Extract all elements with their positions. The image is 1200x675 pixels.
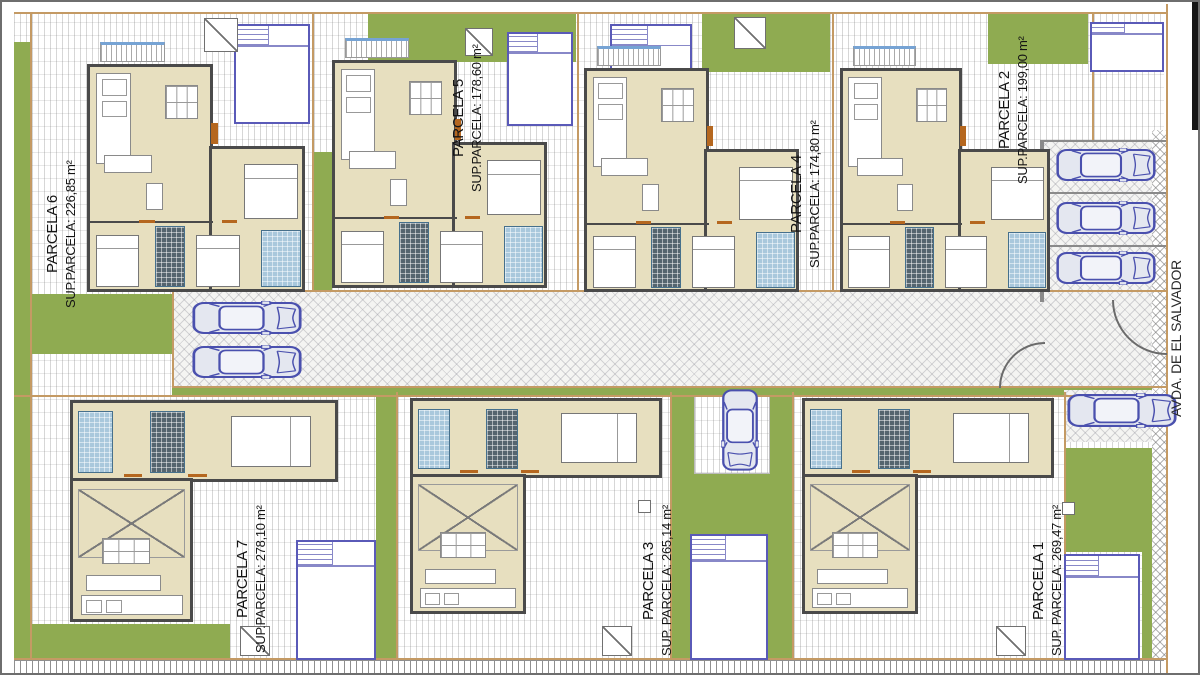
door-jamb: [384, 216, 399, 219]
roof-vent-icon: [996, 626, 1026, 656]
boundary-line: [396, 392, 398, 658]
bed: [561, 413, 637, 463]
furniture: [897, 184, 914, 211]
door-jamb: [465, 216, 480, 219]
parcel-name: PARCELA 5: [450, 32, 469, 204]
kitchen: [96, 73, 131, 164]
bed: [739, 167, 793, 221]
sofa: [349, 151, 396, 169]
parcel-6-label: PARCELA 6 SUP.PARCELA: 226,85 m²: [44, 142, 90, 327]
sofa: [817, 569, 888, 584]
car-icon: [1056, 148, 1156, 182]
dining-table: [409, 81, 441, 115]
house-floor-plan: [802, 398, 1054, 614]
stairs-icon: [853, 46, 916, 66]
dining-table: [165, 85, 198, 119]
sofa: [104, 155, 152, 173]
bathroom: [418, 409, 451, 469]
door-jamb: [717, 221, 732, 224]
boundary-line: [792, 392, 794, 658]
house-floor-plan: [70, 400, 338, 622]
car-icon: [1056, 251, 1156, 285]
parcel-area: SUP.PARCELA: 199,00 m²: [1015, 26, 1032, 194]
garden-patch: [30, 624, 230, 660]
door-jamb: [960, 126, 966, 146]
parcel-name: PARCELA 2: [996, 26, 1015, 194]
bathroom: [810, 409, 843, 469]
bed: [440, 231, 483, 283]
parcel-area: SUP.PARCELA: 226,85 m²: [63, 142, 80, 327]
dining-table: [102, 538, 150, 565]
bathroom: [1008, 232, 1046, 288]
kitchen: [420, 588, 516, 607]
car-icon: [1056, 201, 1156, 235]
parcel-4-label: PARCELA 4 SUP.PARCELA: 174,80 m²: [788, 94, 834, 294]
bed: [341, 231, 384, 283]
dining-table: [832, 532, 877, 558]
kitchen: [81, 595, 183, 615]
dining-table: [661, 88, 693, 122]
parcel-area: SUP.PARCELA: 278,10 m²: [253, 496, 270, 662]
street-name: AVDA. DE EL SALVADOR: [1168, 214, 1186, 464]
boundary-line: [577, 14, 579, 292]
bed: [593, 236, 636, 288]
door-jamb: [913, 470, 931, 473]
parcel-area: SUP.PARCELA: 174,80 m²: [807, 94, 824, 294]
door-jamb: [188, 474, 207, 477]
parcel-3-label: PARCELA 3 SUP. PARCELA: 265,14 m²: [640, 500, 686, 662]
bathroom: [905, 227, 934, 287]
parcel-name: PARCELA 1: [1030, 500, 1049, 662]
parcel-name: PARCELA 3: [640, 500, 659, 662]
door-jamb: [139, 220, 154, 223]
parcel-area: SUP. PARCELA: 265,14 m²: [659, 500, 676, 662]
garden-patch: [14, 42, 30, 660]
bathroom: [78, 411, 113, 473]
car-icon: [192, 301, 302, 335]
boundary-line: [312, 14, 314, 292]
door-jamb: [124, 474, 143, 477]
parcel-name: PARCELA 4: [788, 94, 807, 294]
bathroom: [155, 226, 186, 288]
bed: [196, 235, 240, 287]
dining-table: [916, 88, 948, 122]
door-jamb: [890, 221, 905, 224]
sofa: [857, 158, 903, 176]
bed: [692, 236, 735, 288]
parcel-5-label: PARCELA 5 SUP.PARCELA: 178,60 m²: [450, 32, 496, 204]
roof-vent-icon: [204, 18, 238, 52]
kitchen: [812, 588, 908, 607]
boundary-line: [14, 658, 1166, 660]
door-jamb: [460, 470, 478, 473]
boundary-line: [172, 292, 174, 387]
stairs-icon: [597, 46, 662, 66]
parcel-1-label: PARCELA 1 SUP. PARCELA: 269,47 m²: [1030, 500, 1076, 662]
kitchen: [593, 77, 627, 167]
bathroom: [150, 411, 185, 473]
parking-divider: [1044, 140, 1166, 142]
swimming-pool: [690, 534, 768, 660]
sofa: [86, 575, 161, 591]
door-jamb: [211, 123, 218, 144]
door-jamb: [521, 470, 539, 473]
bathroom: [399, 222, 429, 284]
boundary-line: [14, 12, 1166, 14]
stairs-icon: [345, 38, 410, 58]
parcel-area: SUP. PARCELA: 269,47 m²: [1049, 500, 1066, 662]
door-jamb: [636, 221, 651, 224]
roof-vent-icon: [602, 626, 632, 656]
roof-vent-icon: [734, 17, 766, 49]
dining-table: [440, 532, 485, 558]
furniture: [642, 184, 659, 211]
parcel-name: PARCELA 6: [44, 142, 63, 327]
site-plan: PARCELA 6 SUP.PARCELA: 226,85 m² PARCELA…: [0, 0, 1200, 675]
boundary-line: [14, 395, 1166, 397]
parking-divider: [1044, 245, 1166, 247]
furniture: [390, 179, 407, 206]
garden-patch: [376, 396, 396, 660]
bed: [848, 236, 890, 288]
kitchen: [341, 69, 375, 160]
sofa: [425, 569, 496, 584]
bathroom: [486, 409, 519, 469]
bed: [945, 236, 987, 288]
stairs-icon: [100, 42, 165, 62]
edge-bar: [1192, 2, 1200, 130]
sidewalk-hatch: [14, 660, 1164, 673]
door-jamb: [970, 221, 985, 224]
bed: [96, 235, 140, 287]
sofa: [601, 158, 648, 176]
bathroom: [878, 409, 911, 469]
bathroom: [261, 230, 300, 287]
house-floor-plan: [584, 68, 799, 292]
bed: [244, 164, 299, 219]
street-name-label: AVDA. DE EL SALVADOR: [1168, 214, 1194, 464]
kitchen: [848, 77, 882, 167]
house-floor-plan: [410, 398, 662, 614]
bed: [231, 416, 311, 467]
boundary-line: [30, 12, 32, 658]
bathroom: [504, 226, 543, 283]
swimming-pool: [1090, 22, 1164, 72]
parcel-2-label: PARCELA 2 SUP.PARCELA: 199,00 m²: [996, 26, 1040, 194]
parcel-7-label: PARCELA 7 SUP.PARCELA: 278,10 m²: [234, 496, 280, 662]
car-icon: [192, 345, 302, 379]
parcel-name: PARCELA 7: [234, 496, 253, 662]
bed: [953, 413, 1029, 463]
garden-patch: [312, 152, 332, 290]
garden-patch: [702, 14, 830, 72]
house-floor-plan: [87, 64, 305, 292]
door-jamb: [222, 220, 237, 223]
furniture: [146, 183, 163, 210]
car-icon: [721, 389, 759, 471]
door-jamb: [852, 470, 870, 473]
house-floor-plan: [332, 60, 547, 288]
bathroom: [651, 227, 681, 287]
parcel-area: SUP.PARCELA: 178,60 m²: [469, 32, 486, 204]
parking-divider: [1044, 192, 1166, 194]
garden-patch: [1064, 448, 1166, 552]
door-jamb: [707, 126, 713, 146]
car-icon: [1067, 393, 1177, 428]
